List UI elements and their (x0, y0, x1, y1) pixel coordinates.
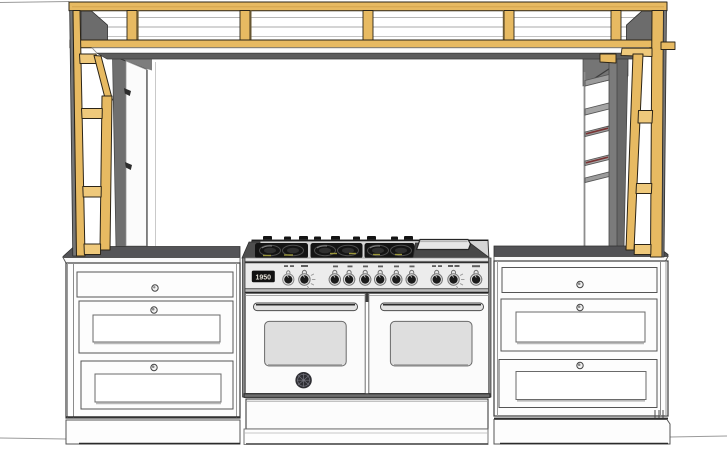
svg-text:1950: 1950 (256, 275, 272, 282)
